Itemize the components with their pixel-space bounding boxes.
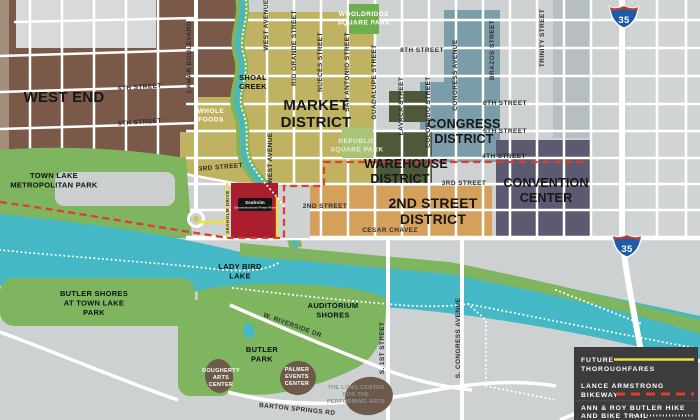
label-dougherty-1: DOUGHERTY [202,368,240,374]
west-end-gray-notch [16,0,156,48]
label-republic-1: REPUBLIC [338,138,375,145]
street-label-guadalupe: GUADALUPE STREET [371,44,378,119]
label-shoal-creek-2: CREEK [239,82,267,91]
label-market-2: DISTRICT [281,114,352,131]
west-end-edge-strip [0,0,9,150]
label-town-lake-1: TOWN LAKE [30,171,78,180]
label-lady-bird-1: LADY BIRD [218,262,262,271]
street-label-lamar: LAMAR BOULEVARD [186,21,193,93]
street-label-s-1st: S. 1ST STREET [379,322,386,375]
street-label-4th: 4TH STREET [482,153,526,160]
legend-divider [574,400,698,401]
label-whole-foods-1: WHOLE [198,108,225,115]
label-butler-shores-3: PARK [83,308,105,317]
street-label-nueces: NUECES STREET [317,32,324,92]
street-label-seaholm-drive: SEAHOLM DRIVE [225,190,230,233]
street-label-3rd-east: 3RD STREET [442,180,486,187]
label-butler-park-1: BUTLER [246,345,278,354]
street-label-5th-east: 5TH STREET [483,128,527,135]
label-town-lake-2: METROPOLITAN PARK [10,181,98,190]
label-palmer-2: EVENTS [285,374,309,380]
label-west-end: WEST END [24,89,105,106]
legend-bikeway-label-2: BIKEWAY [581,392,618,399]
label-seaholm-1: Seaholm [245,200,265,205]
label-butler-shores-2: AT TOWN LAKE [64,299,124,308]
street-label-8th: 8TH STREET [400,47,444,54]
label-butler-shores-1: BUTLER SHORES [60,289,128,298]
label-palmer-1: PALMER [285,367,310,373]
street-label-west-ave-south: WEST AVENUE [267,132,274,184]
label-butler-park-2: PARK [251,355,273,364]
label-2nd-street-1: 2ND STREET [388,195,477,211]
i35-number: 35 [618,15,630,26]
label-republic-2: SQUARE PARK [330,147,383,154]
street-label-colorado: COLORADO STREET [425,76,432,147]
street-label-lavaca: LAVACA STREET [398,77,405,136]
legend-future-label-2: THOROUGHFARES [581,366,655,373]
label-long-center-3: PERFORMING ARTS [327,399,385,405]
label-seaholm-2: Decommissioned Power Plant [234,206,275,210]
legend-future-label-1: FUTURE [581,357,614,364]
street-label-rio-grande: RIO GRANDE STREET [291,10,298,86]
map-legend: FUTURE THOROUGHFARES LANCE ARMSTRONG BIK… [574,347,698,420]
label-dougherty-2: ARTS [213,375,229,381]
map-canvas: 35 35 WEST END MARKET DISTRICT CONGRESS … [0,0,700,420]
street-label-san-antonio: SAN ANTONIO STREET [344,32,351,112]
label-convention-1: CONVENTION [503,176,588,190]
label-palmer-3: CENTER [285,381,309,387]
street-label-6th-east: 6TH STREET [483,100,527,107]
label-long-center-1: THE LONG CENTER [327,385,384,391]
label-convention-2: CENTER [520,191,573,205]
label-auditorium-1: AUDITORIUM [308,301,359,310]
label-lady-bird-2: LAKE [229,272,251,281]
label-wooldridge-2: SQUARE PARK [337,20,390,27]
legend-trail-label-1: ANN & ROY BUTLER HIKE [581,405,686,412]
street-label-cesar-chavez: CESAR CHAVEZ [362,227,418,234]
warehouse-block-1 [389,91,427,122]
street-label-2nd: 2ND STREET [303,203,347,210]
block-shading-east-of-i35 [629,0,700,238]
seaholm-adjacent-block [278,186,310,238]
street-label-s-congress: S. CONGRESS AVENUE [455,297,462,378]
label-whole-foods-2: FOODS [198,117,224,124]
austin-districts-map: 35 35 WEST END MARKET DISTRICT CONGRESS … [0,0,700,420]
street-label-trinity: TRINITY STREET [539,9,546,67]
street-label-congress: CONGRESS AVENUE [452,39,459,111]
label-warehouse-2: DISTRICT [370,172,429,186]
label-shoal-creek-1: SHOAL [239,73,267,82]
street-label-west-ave-north: WEST AVENUE [263,0,270,51]
label-2nd-street-2: DISTRICT [400,211,466,227]
label-warehouse-1: WAREHOUSE [364,157,448,171]
street-label-brazos: BRAZOS STREET [489,20,496,80]
label-auditorium-2: SHORES [316,311,349,320]
label-long-center-2: FOR THE [343,392,369,398]
label-market-1: MARKET [283,97,348,114]
legend-trail-label-2: AND BIKE TRAIL [581,413,648,420]
legend-bikeway-label-1: LANCE ARMSTRONG [581,383,664,390]
label-wooldridge-1: WOOLDRIDGE [339,11,390,18]
i35-number: 35 [621,244,633,255]
label-dougherty-3: CENTER [209,382,233,388]
